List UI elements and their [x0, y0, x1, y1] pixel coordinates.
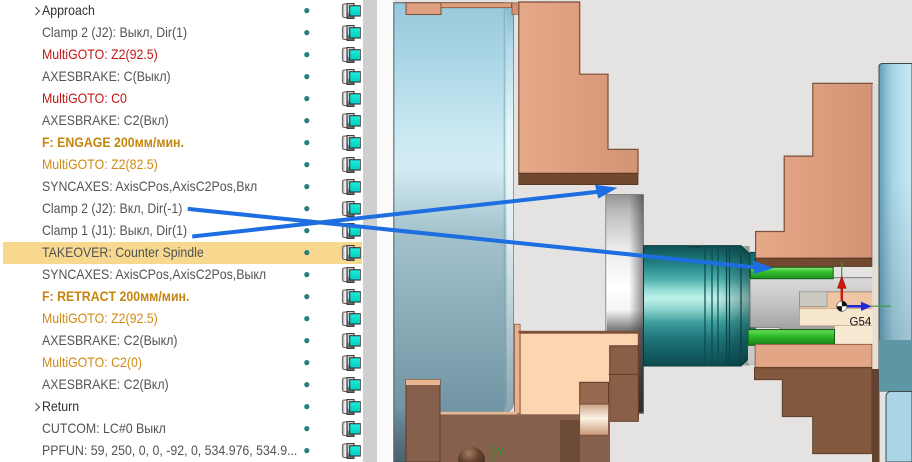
svg-text:Y: Y — [497, 447, 504, 458]
svg-text:G54: G54 — [850, 317, 872, 329]
